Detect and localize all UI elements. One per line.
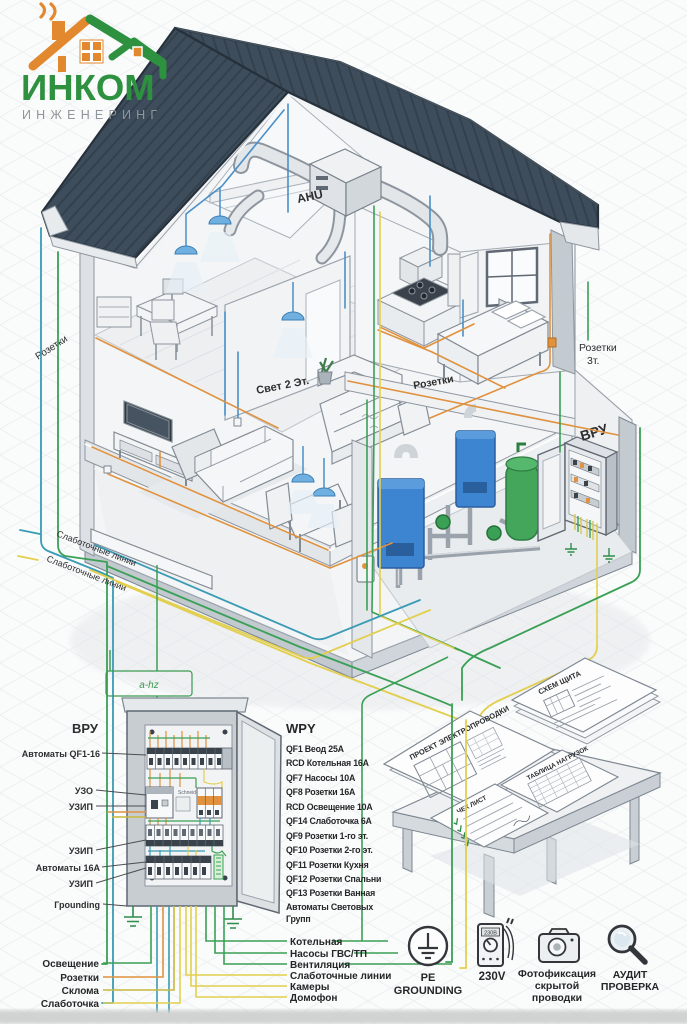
svg-text:Склома: Склома <box>62 986 100 997</box>
svg-text:QF8 Розетки 16А: QF8 Розетки 16А <box>286 787 356 797</box>
svg-text:Автоматы 16А: Автоматы 16А <box>36 863 101 873</box>
svg-text:АУДИТ: АУДИТ <box>613 969 648 981</box>
svg-text:RCD Освещение 10А: RCD Освещение 10А <box>286 802 373 812</box>
svg-text:QF1 Веод 25А: QF1 Веод 25А <box>286 744 345 754</box>
svg-text:QF12 Розетки Спальни: QF12 Розетки Спальни <box>286 874 381 884</box>
svg-text:Слаботочные линии: Слаботочные линии <box>290 970 391 982</box>
svg-text:QF7 Насосы 10А: QF7 Насосы 10А <box>286 773 356 783</box>
svg-text:проводки: проводки <box>532 992 582 1004</box>
svg-text:Автоматы QF1-16: Автоматы QF1-16 <box>22 749 100 759</box>
svg-text:QF11 Розетки Кухня: QF11 Розетки Кухня <box>286 860 369 870</box>
svg-text:ПРОВЕРКА: ПРОВЕРКА <box>601 981 660 993</box>
svg-text:ИНКОМ: ИНКОМ <box>21 67 155 108</box>
svg-text:RCD Котельная 16А: RCD Котельная 16А <box>286 758 370 768</box>
svg-text:230В: 230В <box>484 931 497 937</box>
svg-text:Вентиляция: Вентиляция <box>290 960 350 971</box>
svg-text:ВРУ: ВРУ <box>72 721 99 736</box>
svg-text:WPY: WPY <box>286 721 316 736</box>
svg-text:Гроunding: Гроunding <box>54 900 100 910</box>
svg-text:QF13 Розетки Ванная: QF13 Розетки Ванная <box>286 888 375 898</box>
svg-text:230V: 230V <box>479 971 506 983</box>
svg-text:УЗО: УЗО <box>75 786 93 796</box>
svg-text:Автоматы Световых: Автоматы Световых <box>286 902 373 912</box>
svg-text:УЗИП: УЗИП <box>69 846 93 856</box>
svg-text:Слаботочка: Слаботочка <box>41 998 100 1010</box>
svg-text:Котельная: Котельная <box>290 937 343 948</box>
svg-text:a-hz: a-hz <box>139 680 158 691</box>
svg-text:Домофон: Домофон <box>290 992 337 1004</box>
svg-text:QF9 Розетки 1-го эт.: QF9 Розетки 1-го эт. <box>286 831 368 841</box>
svg-text:QF14 Слаботочка 6А: QF14 Слаботочка 6А <box>286 816 373 826</box>
svg-text:QF10 Розетки 2-го эт.: QF10 Розетки 2-го эт. <box>286 845 373 855</box>
svg-text:Насосы ГВС/ТП: Насосы ГВС/ТП <box>290 949 367 960</box>
svg-text:УЗИП: УЗИП <box>69 802 93 812</box>
svg-text:3т.: 3т. <box>587 355 599 367</box>
svg-text:ИНЖЕНЕРИНГ: ИНЖЕНЕРИНГ <box>22 108 162 122</box>
svg-text:Освещение: Освещение <box>42 959 99 970</box>
svg-text:PE: PE <box>421 972 436 984</box>
svg-text:скрытой: скрытой <box>535 980 579 992</box>
svg-text:УЗИП: УЗИП <box>69 879 93 889</box>
svg-text:Групп: Групп <box>286 914 310 924</box>
svg-text:GROUNDING: GROUNDING <box>394 985 462 997</box>
svg-text:Розетки: Розетки <box>60 973 99 984</box>
svg-text:Камеры: Камеры <box>290 982 329 993</box>
svg-text:Фотофиксация: Фотофиксация <box>518 968 596 980</box>
svg-text:Розетки: Розетки <box>579 342 617 354</box>
